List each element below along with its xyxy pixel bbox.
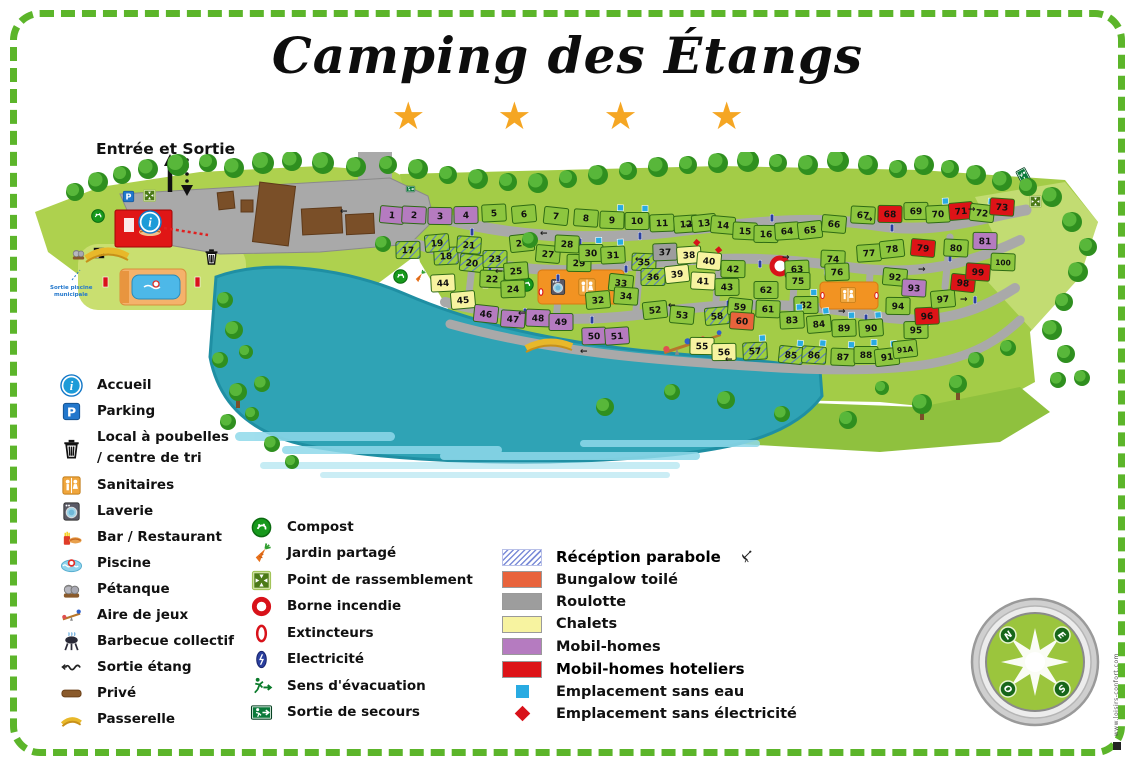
svg-text:79: 79	[916, 244, 929, 255]
map-plot-43: 43	[715, 278, 739, 295]
map-plot-11: 11	[650, 214, 675, 232]
legend-label: Mobil-homes	[556, 639, 661, 655]
svg-text:52: 52	[648, 306, 662, 317]
svg-text:←: ←	[518, 309, 526, 319]
map-plot-77: 77	[856, 244, 881, 263]
color-swatch	[502, 571, 542, 588]
svg-text:28: 28	[560, 240, 573, 251]
svg-text:66: 66	[827, 220, 840, 231]
svg-text:53: 53	[675, 311, 688, 322]
legend-label: Parking	[97, 401, 155, 422]
prive-icon	[58, 682, 84, 705]
svg-text:24: 24	[507, 285, 520, 295]
legend-item: Sortie de secours	[248, 700, 493, 727]
svg-text:←: ←	[495, 267, 503, 277]
map-plot-7: 7	[543, 206, 569, 225]
compost-icon	[248, 516, 274, 539]
jardin-icon	[248, 542, 274, 565]
svg-text:71: 71	[954, 207, 967, 218]
bar-icon	[58, 526, 84, 549]
svg-text:25: 25	[509, 267, 522, 278]
svg-text:34: 34	[619, 292, 632, 303]
map-plot-52: 52	[642, 300, 668, 319]
legend-label: Sortie étang	[97, 657, 192, 678]
svg-text:96: 96	[921, 312, 934, 323]
svg-text:100: 100	[995, 258, 1011, 268]
svg-text:21: 21	[462, 241, 475, 252]
svg-text:76: 76	[831, 268, 844, 278]
legend-label: Laverie	[97, 501, 153, 522]
compass-logo: N E S O	[950, 590, 1120, 742]
legend-label: Compost	[287, 517, 354, 538]
svg-text:15: 15	[738, 227, 751, 238]
svg-text:92: 92	[888, 273, 901, 284]
svg-text:57: 57	[749, 347, 762, 358]
legend-column-middle: CompostJardin partagéPoint de rassemblem…	[248, 514, 493, 726]
svg-text:4: 4	[463, 211, 469, 221]
svg-text:2: 2	[411, 211, 418, 221]
svg-text:→: →	[865, 215, 873, 225]
secours-icon	[248, 701, 274, 724]
legend-label: Bar / Restaurant	[97, 527, 222, 548]
map-plot-25: 25	[503, 262, 528, 281]
map-plot-32: 32	[585, 290, 610, 309]
map-plot-42: 42	[721, 260, 745, 277]
svg-text:86: 86	[807, 351, 820, 362]
legend-item: Mobil-homes	[502, 636, 832, 658]
satellite-dish-icon	[735, 547, 755, 567]
svg-text:16: 16	[760, 230, 773, 240]
svg-text:46: 46	[479, 310, 493, 321]
borne-icon	[248, 595, 274, 618]
map-plot-58: 58	[704, 306, 729, 325]
legend-label: Roulotte	[556, 594, 626, 610]
svg-text:←: ←	[580, 347, 588, 357]
svg-text:85: 85	[784, 351, 798, 362]
map-plot-8: 8	[573, 209, 598, 228]
svg-text:14: 14	[716, 221, 729, 232]
map-plot-80: 80	[944, 239, 969, 257]
svg-text:55: 55	[696, 342, 709, 352]
svg-text:99: 99	[971, 268, 984, 279]
map-plot-78: 78	[879, 239, 905, 258]
legend-label: Pétanque	[97, 579, 170, 600]
color-swatch	[502, 549, 542, 566]
legend-label: Piscine	[97, 553, 151, 574]
svg-text:89: 89	[838, 324, 851, 334]
svg-text:81: 81	[979, 237, 992, 247]
extincteur-icon	[248, 622, 274, 645]
svg-text:18: 18	[440, 252, 453, 263]
svg-text:7: 7	[552, 212, 559, 223]
color-swatch	[502, 685, 542, 698]
color-swatch	[502, 593, 542, 610]
map-plot-97: 97	[930, 289, 955, 308]
legend-label: Point de rassemblement	[287, 570, 473, 591]
barbecue-icon	[58, 630, 84, 653]
map-plot-79: 79	[910, 238, 935, 257]
svg-text:77: 77	[862, 249, 875, 260]
info-icon	[58, 374, 84, 397]
svg-text:87: 87	[837, 353, 850, 363]
svg-text:→: →	[838, 307, 846, 317]
legend-item: Compost	[248, 514, 493, 541]
svg-text:→: →	[960, 295, 968, 305]
map-plot-75: 75	[786, 273, 810, 290]
map-plot-62: 62	[754, 282, 778, 299]
map-plot-61: 61	[756, 300, 781, 318]
svg-text:68: 68	[884, 210, 897, 220]
svg-text:27: 27	[541, 250, 554, 261]
svg-text:→: →	[685, 221, 693, 231]
color-swatch	[502, 708, 542, 719]
sanitaires-icon	[58, 474, 84, 497]
legend-label: Bungalow toilé	[556, 572, 678, 588]
legend-label: Sanitaires	[97, 475, 174, 496]
credit-mark	[1113, 742, 1121, 750]
website-credit: www.loisirs-confort.com	[1113, 653, 1120, 736]
legend-item: Parking	[58, 398, 293, 424]
map-plot-17: 17	[396, 241, 420, 258]
svg-text:←: ←	[340, 207, 348, 217]
star-rating: ★ ★ ★ ★	[0, 94, 1135, 138]
color-swatch	[502, 638, 542, 655]
map-plot-81: 81	[973, 232, 997, 249]
svg-text:38: 38	[682, 251, 695, 262]
legend-label: Chalets	[556, 616, 617, 632]
svg-text:49: 49	[555, 318, 568, 328]
svg-text:13: 13	[697, 219, 711, 230]
svg-text:90: 90	[864, 324, 877, 335]
svg-text:69: 69	[910, 207, 923, 217]
svg-text:11: 11	[656, 219, 669, 229]
svg-text:94: 94	[892, 302, 905, 312]
legend-item: Roulotte	[502, 591, 832, 613]
map-plot-5: 5	[482, 204, 507, 222]
svg-text:20: 20	[465, 259, 479, 270]
map-plot-94: 94	[886, 297, 910, 314]
laverie-icon	[58, 500, 84, 523]
svg-text:88: 88	[860, 351, 873, 361]
map-plot-14: 14	[710, 215, 735, 234]
svg-text:75: 75	[792, 277, 805, 287]
legend-label: Privé	[97, 683, 136, 704]
svg-text:62: 62	[760, 286, 773, 296]
legend-label: Passerelle	[97, 709, 175, 730]
svg-text:50: 50	[588, 332, 601, 342]
legend-item: Electricité	[248, 647, 493, 674]
piscine-icon	[58, 552, 84, 575]
map-plot-100: 100	[991, 253, 1016, 271]
legend-item: Local à poubelles/ centre de tri	[58, 424, 293, 472]
map-plot-37: 37	[653, 243, 678, 261]
legend-label: Electricité	[287, 649, 364, 670]
svg-text:→: →	[918, 265, 926, 275]
legend-label: Sens d'évacuation	[287, 676, 426, 697]
rassemblement-icon	[248, 569, 274, 592]
svg-text:17: 17	[402, 246, 415, 256]
map-plot-4: 4	[454, 206, 478, 223]
page-title: Camping des Étangs	[0, 26, 1135, 85]
legend-item: Chalets	[502, 613, 832, 635]
svg-text:64: 64	[780, 227, 793, 238]
legend-column-right: Récéption paraboleBungalow toiléRoulotte…	[502, 546, 832, 725]
map-plot-49: 49	[549, 314, 573, 331]
petanque-icon	[58, 578, 84, 601]
map-plot-36: 36	[641, 269, 665, 286]
legend-item: Sanitaires	[58, 472, 293, 498]
legend-label: Emplacement sans eau	[556, 684, 744, 700]
legend-label: Local à poubelles/ centre de tri	[97, 427, 229, 469]
map-plot-99: 99	[965, 263, 990, 282]
legend-item: Bungalow toilé	[502, 568, 832, 590]
svg-text:51: 51	[610, 332, 623, 343]
svg-text:→: →	[782, 253, 790, 263]
map-plot-50: 50	[582, 327, 607, 345]
svg-text:42: 42	[727, 265, 740, 275]
svg-text:←: ←	[635, 255, 643, 265]
map-plot-60: 60	[729, 312, 754, 331]
svg-text:41: 41	[696, 277, 709, 288]
svg-text:78: 78	[885, 245, 899, 256]
parking-icon	[58, 400, 84, 423]
color-swatch	[502, 661, 542, 678]
map-plot-69: 69	[904, 202, 928, 219]
svg-text:31: 31	[607, 251, 620, 262]
svg-text:80: 80	[949, 244, 962, 255]
map-plot-21: 21	[456, 236, 481, 255]
svg-text:45: 45	[456, 296, 469, 307]
pool-exit-label: Sortie piscine	[50, 285, 93, 291]
legend-label: Borne incendie	[287, 596, 401, 617]
svg-text:58: 58	[710, 312, 723, 323]
svg-text:48: 48	[532, 314, 545, 324]
map-plot-76: 76	[825, 263, 850, 281]
map-plot-6: 6	[511, 204, 536, 223]
map-plot-20: 20	[459, 253, 485, 272]
map-plot-68: 68	[878, 205, 902, 222]
map-plot-66: 66	[821, 214, 846, 233]
svg-text:39: 39	[670, 270, 684, 281]
legend-item: Point de rassemblement	[248, 567, 493, 594]
svg-text:1: 1	[388, 211, 395, 222]
legend-label: Extincteurs	[287, 623, 374, 644]
svg-text:←: ←	[540, 229, 548, 239]
map-plot-48: 48	[526, 309, 551, 327]
svg-text:73: 73	[995, 203, 1008, 214]
svg-text:19: 19	[430, 239, 443, 250]
svg-text:9: 9	[609, 216, 616, 226]
legend-item: Emplacement sans électricité	[502, 703, 832, 725]
svg-text:91: 91	[880, 353, 894, 364]
svg-text:5: 5	[491, 209, 498, 219]
map-plot-55: 55	[690, 337, 714, 354]
map-plot-2: 2	[402, 206, 427, 224]
svg-text:65: 65	[803, 226, 817, 237]
svg-text:6: 6	[521, 210, 528, 221]
passerelle-icon	[58, 708, 84, 731]
jeux-icon	[58, 604, 84, 627]
legend-label: Emplacement sans électricité	[556, 706, 797, 722]
svg-text:40: 40	[702, 257, 715, 268]
svg-text:←: ←	[668, 301, 676, 311]
legend-item: Mobil-homes hoteliers	[502, 658, 832, 680]
trash-icon	[58, 437, 84, 460]
svg-text:60: 60	[735, 317, 748, 328]
map-plot-65: 65	[797, 220, 823, 239]
map-plot-96: 96	[915, 307, 940, 325]
svg-text:→: →	[968, 205, 976, 215]
svg-text:37: 37	[659, 248, 672, 258]
legend-item: Jardin partagé	[248, 541, 493, 568]
evacuation-icon	[248, 675, 274, 698]
svg-text:23: 23	[489, 255, 502, 265]
legend-label: Accueil	[97, 375, 151, 396]
map-plot-44: 44	[431, 274, 456, 292]
legend-item: Sens d'évacuation	[248, 673, 493, 700]
color-swatch	[502, 616, 542, 633]
svg-text:97: 97	[936, 295, 949, 306]
svg-text:84: 84	[812, 320, 825, 331]
svg-text:30: 30	[585, 249, 598, 259]
map-plot-3: 3	[428, 207, 452, 224]
map-plot-64: 64	[774, 222, 799, 241]
map-plot-46: 46	[473, 304, 499, 323]
svg-text:72: 72	[975, 209, 989, 220]
svg-text:8: 8	[582, 214, 589, 224]
svg-text:91A: 91A	[897, 344, 914, 355]
legend-item: Récéption parabole	[502, 546, 832, 568]
map-plot-39: 39	[664, 264, 690, 283]
camping-map-page: Camping des Étangs ★ ★ ★ ★ Entrée et Sor…	[0, 0, 1135, 766]
legend-label: Aire de jeux	[97, 605, 188, 626]
map-plot-51: 51	[604, 327, 629, 346]
map-plot-34: 34	[613, 287, 638, 306]
svg-text:70: 70	[932, 210, 945, 221]
svg-text:43: 43	[721, 283, 734, 293]
legend-item: Borne incendie	[248, 594, 493, 621]
map-plot-41: 41	[691, 272, 716, 290]
legend-item: Emplacement sans eau	[502, 680, 832, 702]
legend-label: Sortie de secours	[287, 702, 420, 723]
svg-text:95: 95	[910, 326, 923, 336]
legend-label: Mobil-homes hoteliers	[556, 660, 745, 678]
map-plot-28: 28	[555, 235, 580, 253]
svg-text:44: 44	[437, 279, 450, 290]
svg-text:3: 3	[437, 212, 443, 222]
pool-exit-label-2: municipale	[54, 292, 88, 298]
map-plot-1: 1	[379, 205, 404, 224]
sortie-etang-icon	[58, 656, 84, 679]
svg-text:93: 93	[907, 284, 920, 295]
legend-label: Jardin partagé	[287, 543, 396, 564]
svg-text:10: 10	[631, 217, 644, 227]
svg-text:←: ←	[725, 355, 733, 365]
map-plot-19: 19	[424, 233, 449, 252]
legend-label: Récéption parabole	[556, 548, 721, 566]
legend-item: Accueil	[58, 372, 293, 398]
legend-label: Barbecue collectif	[97, 631, 234, 652]
svg-text:36: 36	[647, 273, 660, 283]
map-plot-73: 73	[989, 198, 1014, 217]
map-plot-45: 45	[450, 290, 475, 309]
svg-text:32: 32	[591, 296, 604, 307]
map-plot-93: 93	[902, 279, 927, 297]
svg-text:61: 61	[762, 305, 775, 315]
legend-item: Extincteurs	[248, 620, 493, 647]
map-plot-24: 24	[501, 280, 526, 298]
electricite-icon	[248, 648, 274, 671]
svg-text:83: 83	[786, 316, 799, 327]
